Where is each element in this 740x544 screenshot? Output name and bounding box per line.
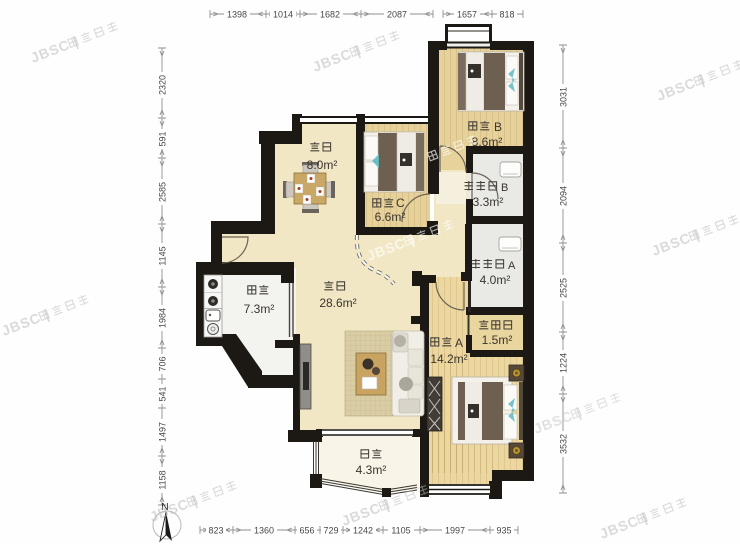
svg-text:4.0m²: 4.0m² (480, 273, 511, 287)
svg-text:1105: 1105 (391, 526, 410, 536)
svg-text:1014: 1014 (273, 10, 293, 20)
svg-text:28.6m²: 28.6m² (319, 296, 356, 310)
svg-text:3.3m²: 3.3m² (473, 195, 504, 209)
svg-text:2094: 2094 (559, 186, 569, 206)
svg-text:656: 656 (299, 526, 314, 536)
svg-text:6.6m²: 6.6m² (375, 210, 406, 224)
svg-text:706: 706 (158, 356, 168, 371)
svg-text:935: 935 (496, 526, 511, 536)
svg-text:3532: 3532 (559, 434, 569, 454)
svg-text:591: 591 (158, 131, 168, 146)
svg-text:1682: 1682 (320, 10, 340, 20)
svg-text:4.3m²: 4.3m² (356, 463, 387, 477)
svg-text:2525: 2525 (559, 278, 569, 298)
svg-text:818: 818 (499, 10, 514, 20)
svg-text:2585: 2585 (158, 182, 168, 202)
svg-text:8.6m²: 8.6m² (472, 135, 503, 149)
svg-text:B: B (501, 182, 508, 194)
svg-text:1158: 1158 (158, 470, 168, 489)
svg-text:1.5m²: 1.5m² (482, 333, 513, 347)
svg-text:1242: 1242 (353, 526, 373, 536)
svg-text:A: A (455, 336, 463, 350)
svg-text:C: C (396, 196, 405, 210)
svg-text:729: 729 (323, 526, 338, 536)
svg-text:1997: 1997 (445, 526, 465, 536)
svg-text:1984: 1984 (158, 308, 168, 328)
svg-text:1224: 1224 (559, 353, 569, 373)
svg-text:541: 541 (158, 386, 168, 401)
svg-text:7.3m²: 7.3m² (244, 302, 275, 316)
svg-text:14.2m²: 14.2m² (430, 352, 467, 366)
svg-text:3031: 3031 (559, 87, 569, 107)
svg-text:8.0m²: 8.0m² (307, 158, 338, 172)
svg-text:1657: 1657 (457, 10, 477, 20)
svg-text:1398: 1398 (227, 10, 247, 20)
svg-text:823: 823 (208, 526, 223, 536)
svg-text:1497: 1497 (158, 422, 168, 442)
svg-text:1360: 1360 (254, 526, 274, 536)
svg-text:1145: 1145 (158, 246, 168, 265)
svg-text:2320: 2320 (158, 75, 168, 95)
svg-text:2087: 2087 (387, 10, 407, 20)
svg-text:B: B (494, 120, 502, 134)
svg-text:A: A (508, 260, 516, 272)
